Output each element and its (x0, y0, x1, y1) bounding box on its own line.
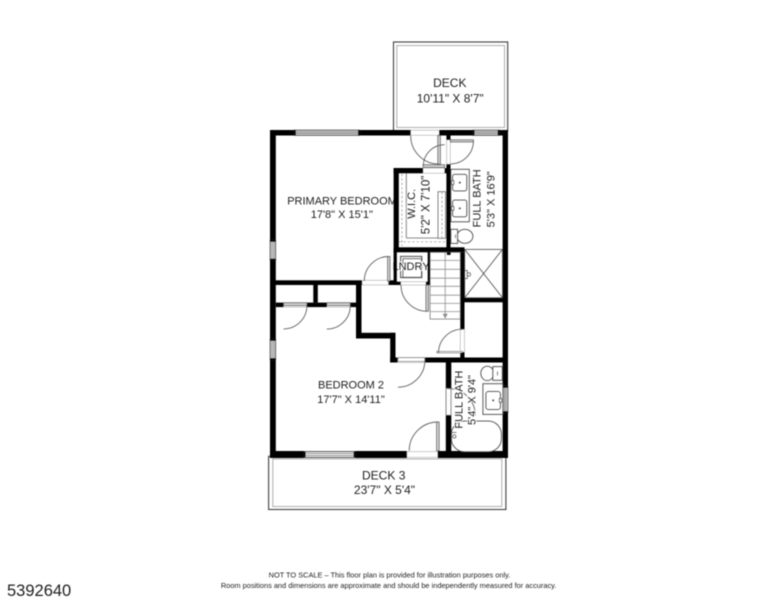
svg-text:LNDRY: LNDRY (392, 261, 430, 273)
svg-text:BEDROOM 2: BEDROOM 2 (318, 379, 384, 391)
svg-text:17'8" X 15'1": 17'8" X 15'1" (311, 209, 373, 221)
svg-text:5'4" X 9'4": 5'4" X 9'4" (467, 375, 479, 425)
svg-text:5'3" X 16'9": 5'3" X 16'9" (485, 171, 497, 227)
svg-text:17'7" X 14'11": 17'7" X 14'11" (317, 394, 385, 406)
svg-text:Room positions and dimensions: Room positions and dimensions are approx… (221, 581, 557, 590)
svg-text:FULL BATH: FULL BATH (471, 169, 483, 227)
svg-text:23'7" X 5'4": 23'7" X 5'4" (354, 483, 415, 497)
svg-text:NOT TO SCALE – This floor plan: NOT TO SCALE – This floor plan is provid… (269, 570, 511, 579)
svg-text:PRIMARY BEDROOM: PRIMARY BEDROOM (287, 195, 397, 207)
svg-text:W.I.C.: W.I.C. (406, 189, 418, 219)
svg-text:10'11" X 8'7": 10'11" X 8'7" (417, 92, 484, 106)
svg-text:5392640: 5392640 (7, 582, 71, 600)
svg-text:5'2" X 7'10": 5'2" X 7'10" (420, 176, 432, 235)
svg-text:DECK 3: DECK 3 (362, 469, 406, 483)
svg-text:DECK: DECK (433, 76, 466, 90)
svg-text:FULL BATH: FULL BATH (454, 371, 466, 429)
